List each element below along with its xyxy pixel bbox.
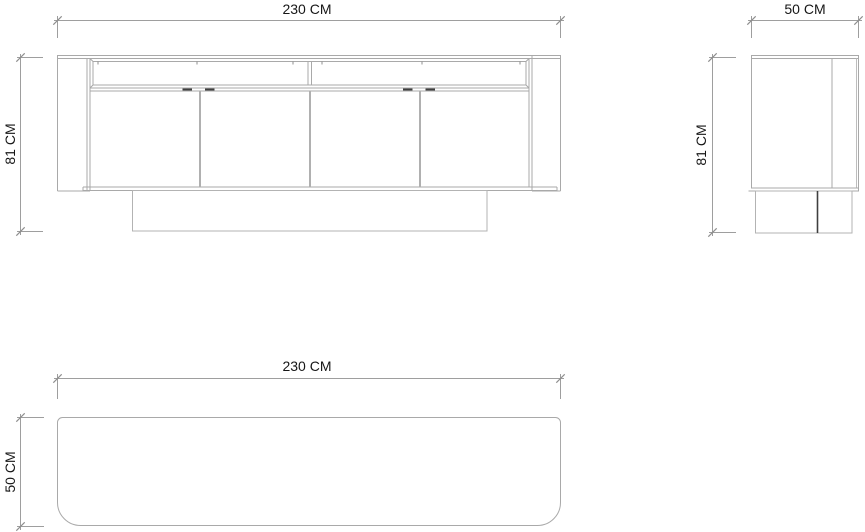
front-view [57,56,561,232]
front-plinth [133,191,488,232]
front-left-panel [58,56,91,192]
dim-front-width-line [53,16,564,38]
front-shelf-divider [308,62,312,86]
top-depth-dimension-label: 50 CM [2,432,18,512]
front-top-edge [57,56,561,59]
dim-top-depth-line [16,413,44,530]
side-top-edge [751,56,859,59]
front-door-dividers [200,91,420,187]
dim-top-width-line [53,374,564,399]
dim-side-height-line [708,53,736,236]
technical-drawing-canvas: 230 CM 81 CM 50 CM 81 CM 230 CM 50 CM [0,0,865,532]
front-height-dimension-label: 81 CM [2,104,18,184]
dim-front-height-line [16,53,43,235]
top-view [58,418,561,526]
front-shelf-frame [90,59,529,89]
side-depth-dimension-label: 50 CM [765,1,845,17]
front-width-dimension-label: 230 CM [267,1,347,17]
side-view [749,56,860,234]
front-right-panel [529,56,561,192]
top-view-outline [58,418,561,526]
drawing-linework [0,0,865,532]
dim-side-depth-line [747,16,862,38]
dimension-lines [16,16,862,531]
front-bottom-edge [83,187,557,191]
top-width-dimension-label: 230 CM [267,358,347,374]
side-plinth [756,191,853,233]
side-outline [752,56,859,192]
side-height-dimension-label: 81 CM [693,105,709,185]
